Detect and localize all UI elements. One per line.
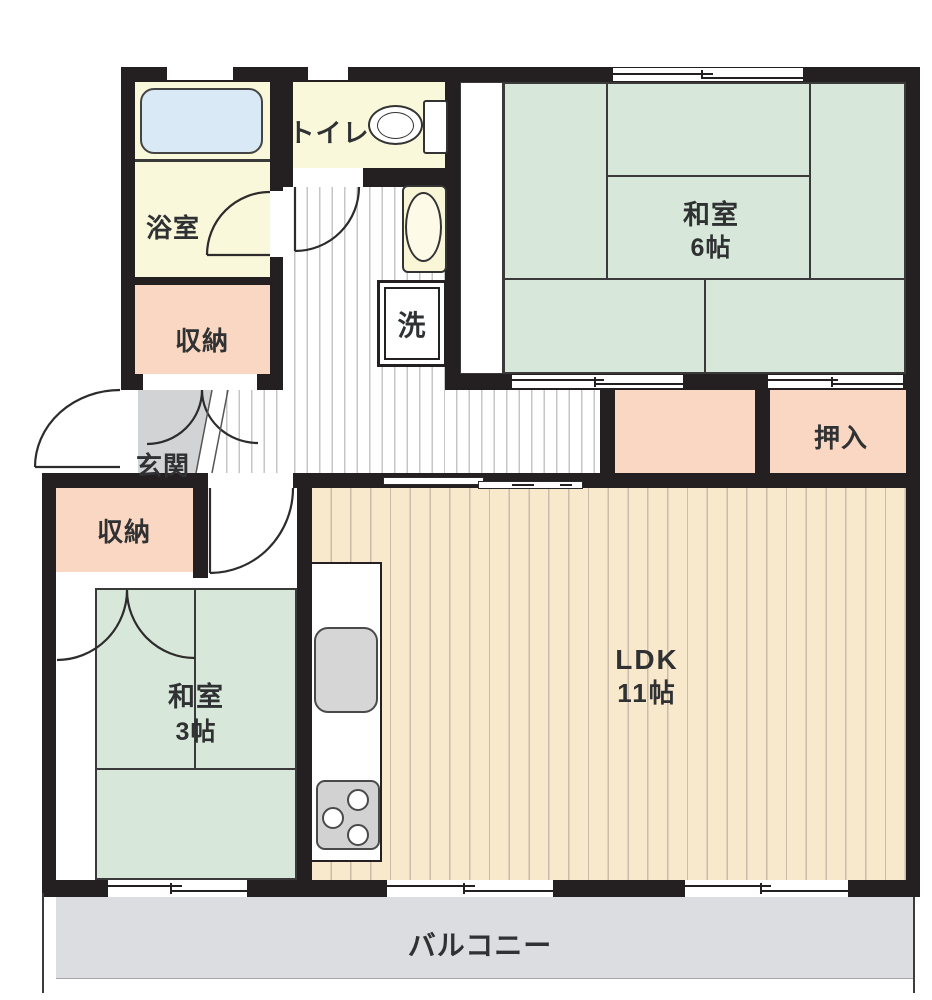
sliding-door-symbol <box>768 379 838 381</box>
entrance-label: 玄関 <box>103 446 223 483</box>
sliding-door-symbol <box>512 484 534 486</box>
window-symbol <box>108 880 247 897</box>
door-opening <box>293 168 363 187</box>
window-symbol <box>760 883 762 894</box>
window-symbol <box>613 73 713 75</box>
washing-machine-pan-icon: 洗 <box>384 287 440 360</box>
wall <box>135 277 270 285</box>
window-symbol <box>170 883 172 894</box>
sliding-door-symbol <box>560 484 572 486</box>
storage-lower-label: 収納 <box>64 512 184 549</box>
bathroom-label: 浴室 <box>113 208 233 245</box>
balcony-label: バルコニー <box>359 924 601 964</box>
window-symbol <box>387 880 553 897</box>
wall <box>42 473 56 897</box>
wall <box>755 376 770 475</box>
sliding-door-symbol <box>595 383 683 385</box>
window-symbol <box>464 890 553 892</box>
window-symbol <box>702 77 803 79</box>
tatami-line <box>606 82 608 278</box>
wall <box>906 67 920 897</box>
stove-burner-icon <box>347 824 369 846</box>
bathroom-divider-line <box>135 159 270 162</box>
door-opening <box>270 191 283 257</box>
window-symbol <box>685 885 771 887</box>
room-name: 和室 <box>683 200 739 230</box>
japanese-room-6-label: 和室 6帖 <box>631 199 791 264</box>
sliding-door-symbol <box>768 375 903 388</box>
vent-window-symbol <box>167 67 233 80</box>
room-closet <box>615 390 755 476</box>
hall-door-arc <box>210 488 293 573</box>
tatami-line <box>809 82 811 278</box>
sliding-door-symbol <box>832 383 903 385</box>
window-symbol <box>463 883 465 894</box>
bathtub-icon <box>140 88 263 154</box>
hallway-floor <box>215 390 283 475</box>
hallway-floor <box>445 390 602 475</box>
sliding-door-symbol <box>383 477 484 485</box>
window-symbol <box>761 890 848 892</box>
wall <box>193 473 208 578</box>
stove-burner-icon <box>322 807 344 829</box>
door-opening <box>143 374 257 390</box>
room-name: 和室 <box>168 682 224 712</box>
vent-window-symbol <box>308 67 348 80</box>
stove-burner-icon <box>347 789 369 811</box>
ldk-label: LDK 11帖 <box>567 643 727 710</box>
window-symbol <box>701 70 703 79</box>
room-name: LDK <box>615 644 679 675</box>
floorplan: 洗 浴室 トイレ 収納 玄関 和室 6帖 押入 収納 和室 3帖 LDK 11帖… <box>0 0 932 1000</box>
room-size: 3帖 <box>176 718 217 746</box>
window-symbol <box>685 880 848 897</box>
laundry-label: 洗 <box>397 304 426 344</box>
kitchen-sink-icon <box>314 627 378 713</box>
storage-upper-label: 収納 <box>142 321 262 358</box>
sliding-door-symbol <box>594 377 596 387</box>
washitsu6-edge-strip <box>460 82 503 374</box>
washbasin-bowl-icon <box>405 192 442 262</box>
sliding-door-symbol <box>831 377 833 387</box>
wall <box>297 475 312 880</box>
wall <box>600 390 615 475</box>
tatami-line <box>606 175 810 177</box>
window-symbol <box>387 885 475 887</box>
window-symbol <box>171 890 247 892</box>
room-size: 11帖 <box>617 678 677 708</box>
tatami-line <box>704 278 706 374</box>
oshiire-label: 押入 <box>781 418 901 455</box>
sliding-door-symbol <box>512 379 604 381</box>
tatami-line <box>95 768 297 770</box>
toilet-label: トイレ <box>269 113 389 150</box>
sliding-door-symbol <box>512 375 683 388</box>
toilet-tank-icon <box>423 100 448 154</box>
japanese-room-3-label: 和室 3帖 <box>116 680 276 749</box>
room-size: 6帖 <box>691 234 732 262</box>
